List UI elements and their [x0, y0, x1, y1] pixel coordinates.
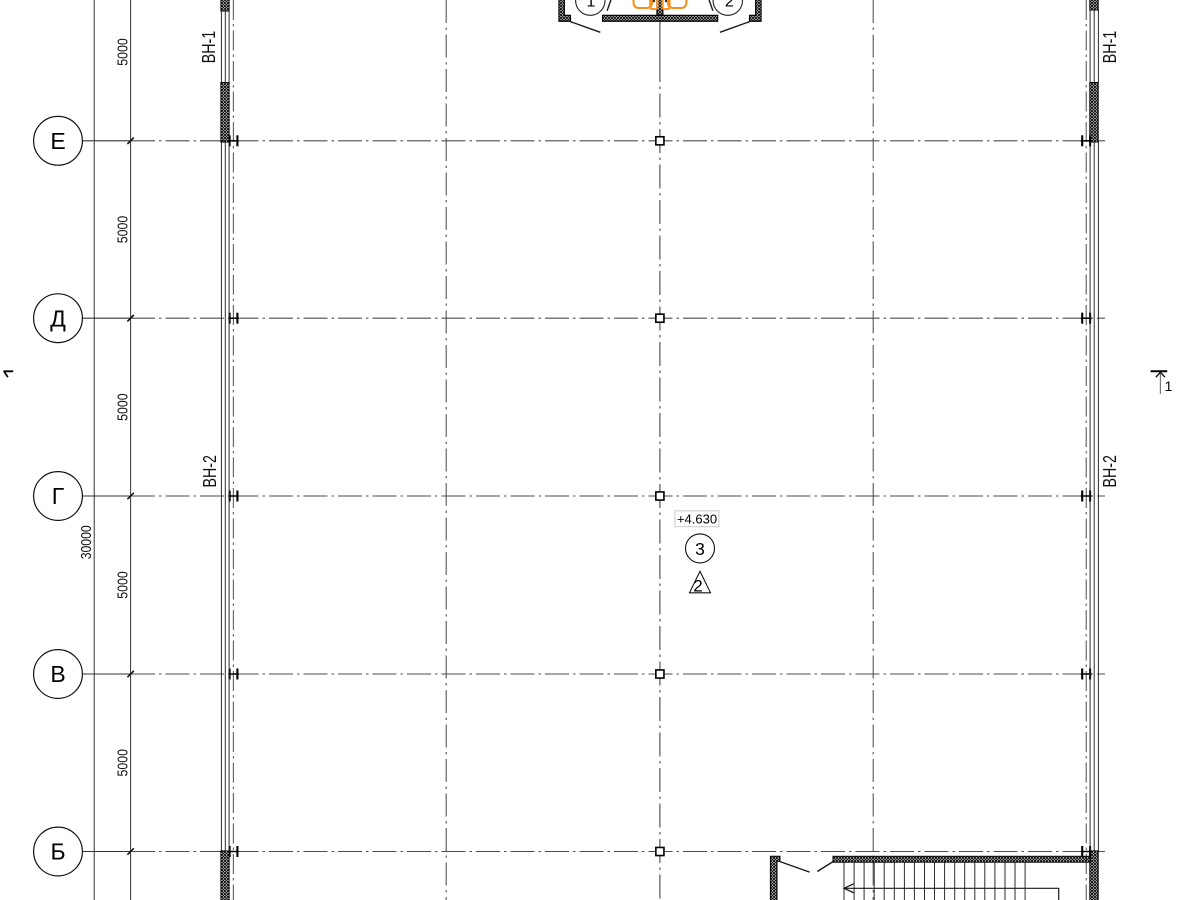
svg-text:5000: 5000 — [114, 38, 131, 66]
svg-text:2: 2 — [725, 0, 734, 10]
svg-text:ВН-2: ВН-2 — [199, 455, 220, 488]
svg-text:5000: 5000 — [114, 571, 131, 599]
svg-text:Б: Б — [50, 839, 65, 865]
svg-text:В: В — [50, 661, 65, 687]
svg-text:ВН-2: ВН-2 — [1099, 455, 1120, 488]
svg-text:5000: 5000 — [114, 749, 131, 777]
svg-text:Д: Д — [50, 305, 66, 331]
svg-text:5000: 5000 — [114, 216, 131, 244]
svg-text:+4.630: +4.630 — [677, 511, 717, 526]
svg-text:1: 1 — [586, 0, 595, 10]
svg-text:ВН-1: ВН-1 — [1099, 31, 1120, 64]
svg-text:1: 1 — [1165, 378, 1173, 394]
svg-text:Г: Г — [52, 483, 65, 509]
svg-text:Е: Е — [50, 128, 65, 154]
svg-text:30000: 30000 — [78, 525, 95, 559]
svg-text:3: 3 — [695, 539, 705, 559]
svg-text:2: 2 — [693, 576, 702, 595]
svg-text:ВН-1: ВН-1 — [198, 31, 219, 64]
svg-text:5000: 5000 — [114, 393, 131, 421]
